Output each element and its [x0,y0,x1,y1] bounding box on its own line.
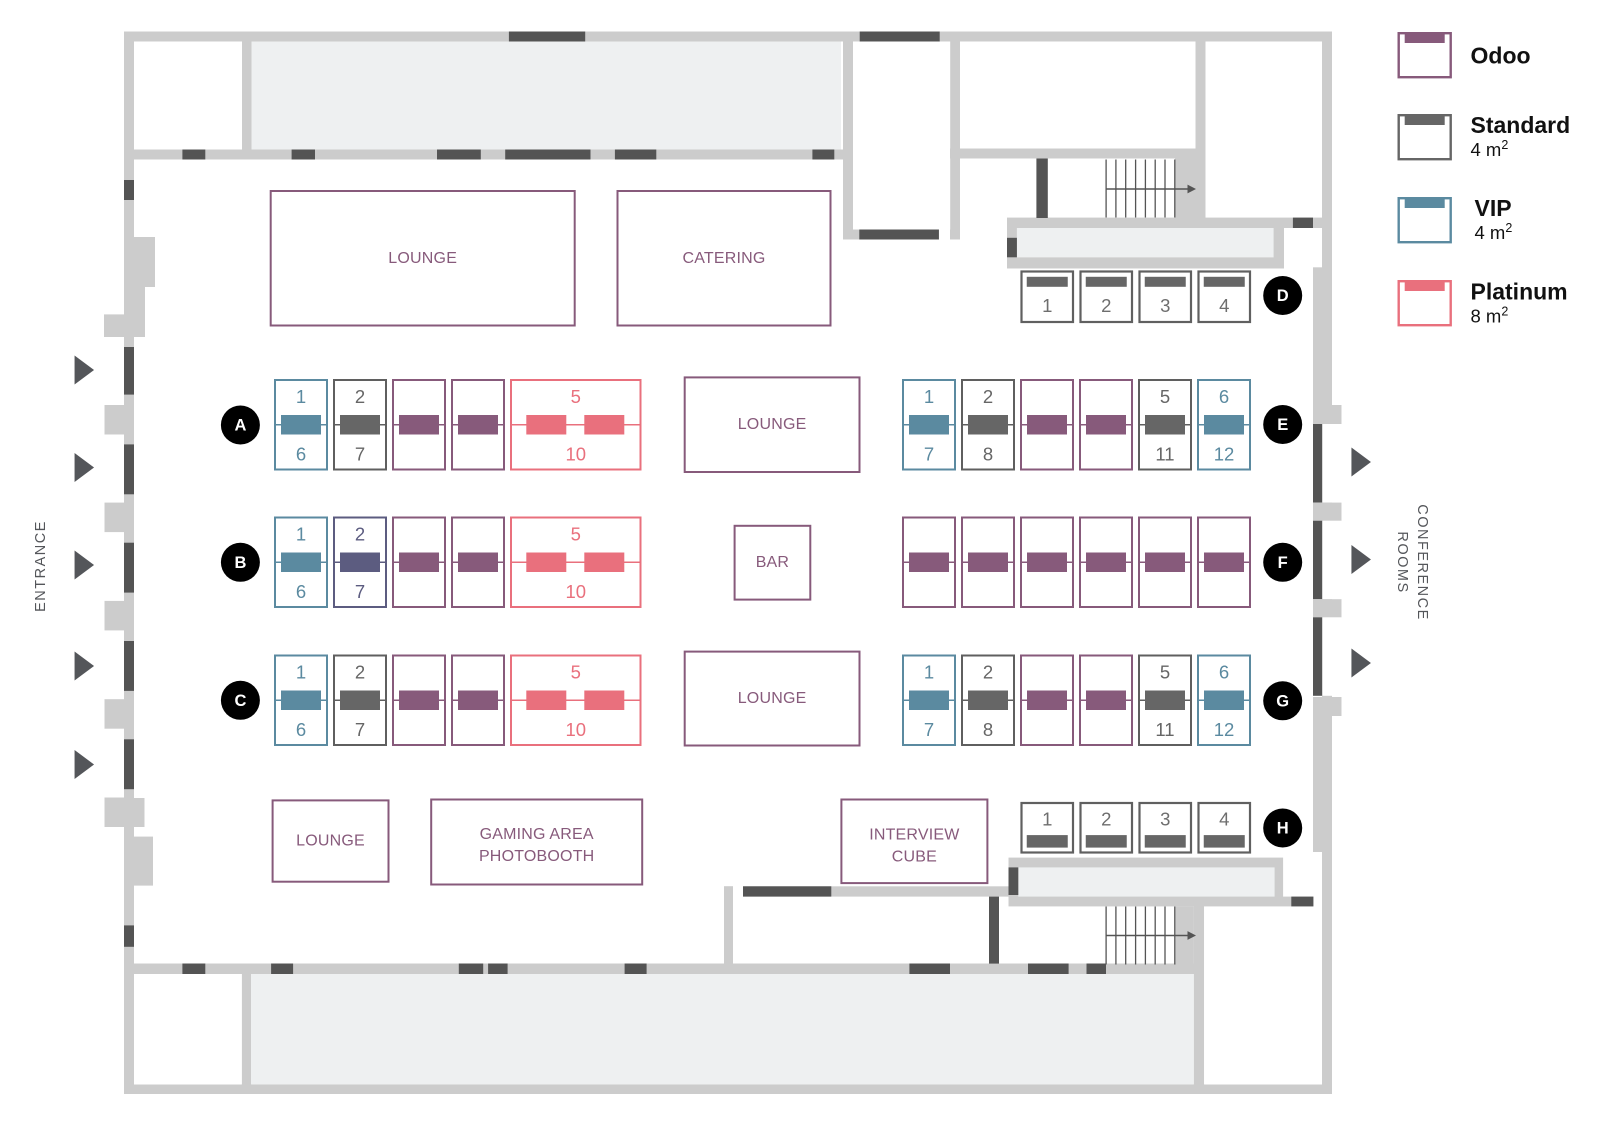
svg-text:8 m2: 8 m2 [1471,304,1509,326]
svg-text:ROOMS: ROOMS [1394,531,1410,593]
svg-text:12: 12 [1214,719,1235,740]
svg-text:1: 1 [924,386,934,407]
svg-text:1: 1 [1042,809,1052,830]
svg-text:2: 2 [355,523,365,544]
svg-text:4 m2: 4 m2 [1471,138,1509,160]
svg-text:2: 2 [355,661,365,682]
svg-text:7: 7 [355,581,365,602]
svg-text:6: 6 [1219,386,1229,407]
svg-text:10: 10 [565,581,586,602]
svg-text:12: 12 [1214,443,1235,464]
svg-text:LOUNGE: LOUNGE [296,833,365,850]
svg-text:5: 5 [571,386,581,407]
svg-text:6: 6 [296,719,306,740]
svg-text:G: G [1276,692,1289,710]
svg-text:5: 5 [1160,386,1170,407]
svg-text:11: 11 [1155,719,1174,740]
svg-text:ENTRANCE: ENTRANCE [33,520,49,612]
svg-text:7: 7 [924,443,934,464]
svg-text:8: 8 [983,719,993,740]
svg-text:1: 1 [296,386,306,407]
svg-text:C: C [234,692,246,710]
svg-text:INTERVIEW: INTERVIEW [869,827,960,844]
svg-text:6: 6 [1219,661,1229,682]
svg-text:3: 3 [1160,809,1170,830]
svg-text:5: 5 [571,523,581,544]
svg-text:7: 7 [355,719,365,740]
svg-text:BAR: BAR [756,554,790,571]
svg-text:7: 7 [355,443,365,464]
svg-text:2: 2 [355,386,365,407]
svg-text:CONFERENCE: CONFERENCE [1414,504,1430,621]
svg-text:GAMING AREA: GAMING AREA [480,826,594,843]
svg-text:4: 4 [1219,809,1229,830]
svg-text:CATERING: CATERING [682,250,765,267]
svg-text:B: B [234,554,246,572]
svg-text:1: 1 [296,523,306,544]
svg-text:LOUNGE: LOUNGE [738,416,807,433]
svg-text:2: 2 [1101,295,1111,316]
svg-text:H: H [1277,820,1289,838]
svg-text:3: 3 [1160,295,1170,316]
svg-text:1: 1 [296,661,306,682]
svg-text:7: 7 [924,719,934,740]
svg-text:Odoo: Odoo [1471,43,1531,69]
svg-text:VIP: VIP [1475,195,1512,221]
svg-text:5: 5 [571,661,581,682]
svg-text:8: 8 [983,443,993,464]
svg-text:Standard: Standard [1471,112,1571,138]
svg-text:2: 2 [983,661,993,682]
svg-text:5: 5 [1160,661,1170,682]
svg-text:Platinum: Platinum [1471,278,1568,304]
svg-text:2: 2 [983,386,993,407]
svg-text:6: 6 [296,443,306,464]
svg-text:F: F [1278,554,1288,572]
svg-text:D: D [1277,287,1289,305]
svg-text:6: 6 [296,581,306,602]
svg-text:10: 10 [565,443,586,464]
svg-text:1: 1 [924,661,934,682]
svg-text:1: 1 [1042,295,1052,316]
svg-text:PHOTOBOOTH: PHOTOBOOTH [479,848,595,865]
svg-text:E: E [1277,416,1288,434]
svg-text:LOUNGE: LOUNGE [388,250,457,267]
svg-text:LOUNGE: LOUNGE [738,690,807,707]
svg-text:11: 11 [1155,443,1174,464]
svg-text:4: 4 [1219,295,1229,316]
svg-text:4 m2: 4 m2 [1475,221,1513,243]
svg-text:10: 10 [565,719,586,740]
svg-text:2: 2 [1101,809,1111,830]
svg-text:A: A [234,417,246,435]
svg-text:CUBE: CUBE [892,849,937,866]
